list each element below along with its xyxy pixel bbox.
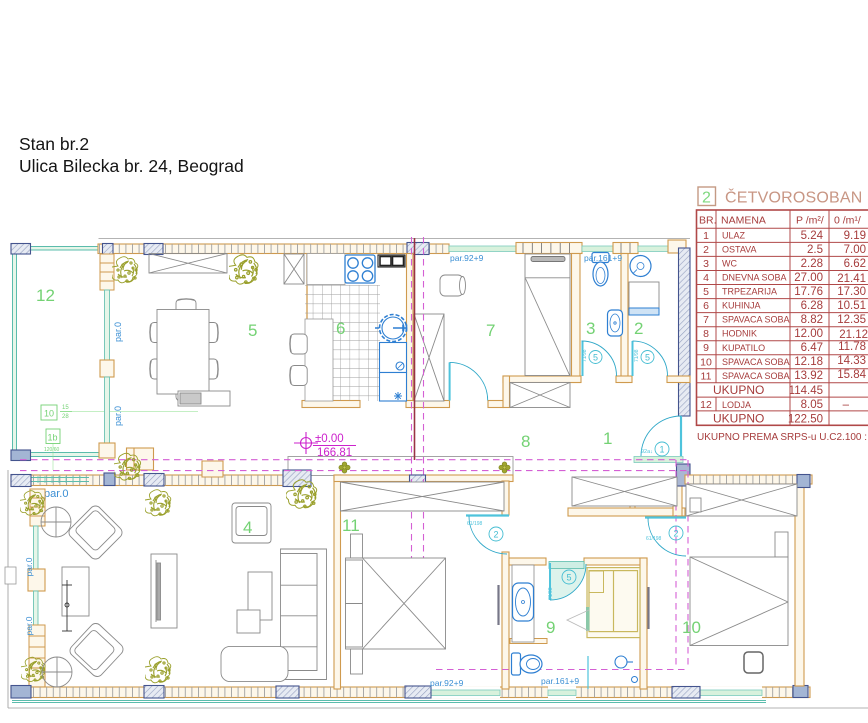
svg-text:SPAVACA SOBA: SPAVACA SOBA [722,357,790,367]
svg-text:2: 2 [702,190,711,207]
svg-text:71/98: 71/98 [582,349,588,362]
svg-text:SPAVACA SOBA: SPAVACA SOBA [722,371,790,381]
svg-text:61/198: 61/198 [646,536,662,542]
svg-text:120/60: 120/60 [44,447,60,453]
svg-text:par.0: par.0 [24,616,34,635]
svg-text:±0.00: ±0.00 [315,433,344,445]
svg-text:Stan br.2: Stan br.2 [19,134,89,154]
svg-text:3: 3 [703,258,709,270]
svg-text:par.161+9: par.161+9 [584,253,622,263]
svg-text:OSTAVA: OSTAVA [722,245,757,255]
svg-text:12: 12 [36,286,55,305]
svg-text:15.84: 15.84 [837,369,866,381]
svg-text:17.30: 17.30 [837,286,866,298]
svg-text:4: 4 [703,272,709,284]
svg-text:SPAVACA SOBA: SPAVACA SOBA [722,315,790,325]
svg-text:61/198: 61/198 [467,521,483,527]
svg-text:10: 10 [700,357,712,369]
svg-text:2.28: 2.28 [801,258,823,270]
svg-text:21.12: 21.12 [839,329,868,341]
svg-text:2.5: 2.5 [807,244,823,256]
svg-text:1: 1 [703,230,709,242]
svg-text:2: 2 [703,244,709,256]
svg-text:par.0: par.0 [24,557,34,576]
svg-text:par.92+9: par.92+9 [450,253,484,263]
svg-text:7: 7 [703,314,709,326]
svg-text:12.35: 12.35 [837,314,866,326]
svg-text:0 /m¹/: 0 /m¹/ [834,215,861,227]
svg-text:6: 6 [703,300,709,312]
svg-text:28: 28 [62,414,69,420]
svg-text:17.76: 17.76 [794,286,823,298]
svg-text:8: 8 [703,328,709,340]
svg-text:6: 6 [336,319,345,338]
svg-text:8.82: 8.82 [801,314,823,326]
svg-text:Ulica Bilecka br. 24, Beograd: Ulica Bilecka br. 24, Beograd [19,156,244,176]
svg-text:4: 4 [243,518,252,537]
svg-text:5: 5 [593,353,598,363]
svg-text:11: 11 [701,371,712,383]
svg-text:5: 5 [645,353,650,363]
svg-text:7: 7 [486,321,495,340]
svg-text:NAMENA: NAMENA [721,215,766,227]
svg-text:10: 10 [44,409,54,419]
svg-text:2: 2 [673,529,678,539]
svg-text:UKUPNO: UKUPNO [713,383,764,397]
svg-text:10: 10 [682,618,701,637]
svg-text:5: 5 [248,321,257,340]
svg-text:21.41: 21.41 [837,273,866,285]
svg-text:KUPATILO: KUPATILO [722,343,765,353]
svg-text:1b: 1b [48,433,58,443]
svg-text:9.19: 9.19 [844,230,866,242]
svg-text:12: 12 [700,399,712,411]
svg-text:8: 8 [521,432,530,451]
svg-text:par.0: par.0 [113,406,123,426]
svg-text:114.45: 114.45 [789,385,823,397]
svg-text:166.81: 166.81 [317,447,352,459]
svg-text:DNEVNA SOBA: DNEVNA SOBA [722,273,787,283]
svg-text:5: 5 [703,286,709,298]
svg-text:WC: WC [722,259,737,269]
svg-text:15: 15 [62,405,69,411]
svg-text:27.00: 27.00 [794,272,823,284]
svg-text:8.05: 8.05 [801,399,823,411]
svg-text:12.00: 12.00 [794,328,823,340]
svg-text:LODJA: LODJA [722,400,751,410]
svg-text:9: 9 [546,618,555,637]
svg-text:ČETVOROSOBAN S: ČETVOROSOBAN S [725,188,868,207]
svg-text:5.24: 5.24 [801,230,824,242]
svg-text:–: – [843,399,850,411]
svg-text:6.28: 6.28 [801,300,823,312]
svg-text:1: 1 [659,445,664,455]
svg-text:5: 5 [566,573,571,583]
svg-text:1: 1 [603,429,612,448]
svg-text:KUHINJA: KUHINJA [722,301,761,311]
svg-text:12.18: 12.18 [794,356,823,368]
svg-text:122.50: 122.50 [788,414,823,426]
svg-text:par.0: par.0 [44,488,68,500]
svg-text:UKUPNO: UKUPNO [713,412,764,426]
svg-text:HODNIK: HODNIK [722,329,757,339]
svg-text:10.51: 10.51 [837,300,866,312]
svg-text:2: 2 [493,530,498,540]
svg-text:par.0: par.0 [113,322,123,342]
svg-text:13.92: 13.92 [794,370,823,382]
svg-text:11: 11 [342,516,360,535]
svg-text:ULAZ: ULAZ [722,231,746,241]
svg-text:71/98: 71/98 [634,349,640,362]
svg-text:9: 9 [703,342,709,354]
svg-text:UKUPNO PREMA SRPS-u U.C2.100 :: UKUPNO PREMA SRPS-u U.C2.100 : 12 [697,432,868,443]
svg-text:71/98: 71/98 [548,587,554,600]
svg-text:par.92+9: par.92+9 [430,678,464,688]
svg-text:2: 2 [634,319,643,338]
svg-text:14.33: 14.33 [837,355,866,367]
svg-text:P /m²/: P /m²/ [796,215,824,227]
svg-text:92a↓: 92a↓ [641,449,653,455]
svg-text:par.161+9: par.161+9 [541,676,579,686]
svg-text:7.00: 7.00 [844,244,866,256]
svg-text:6.47: 6.47 [801,342,823,354]
svg-text:BR.: BR. [699,215,717,227]
svg-text:11.78: 11.78 [838,341,866,353]
svg-text:TRPEZARIJA: TRPEZARIJA [722,287,777,297]
svg-text:3: 3 [586,319,595,338]
svg-text:6.62: 6.62 [844,258,866,270]
